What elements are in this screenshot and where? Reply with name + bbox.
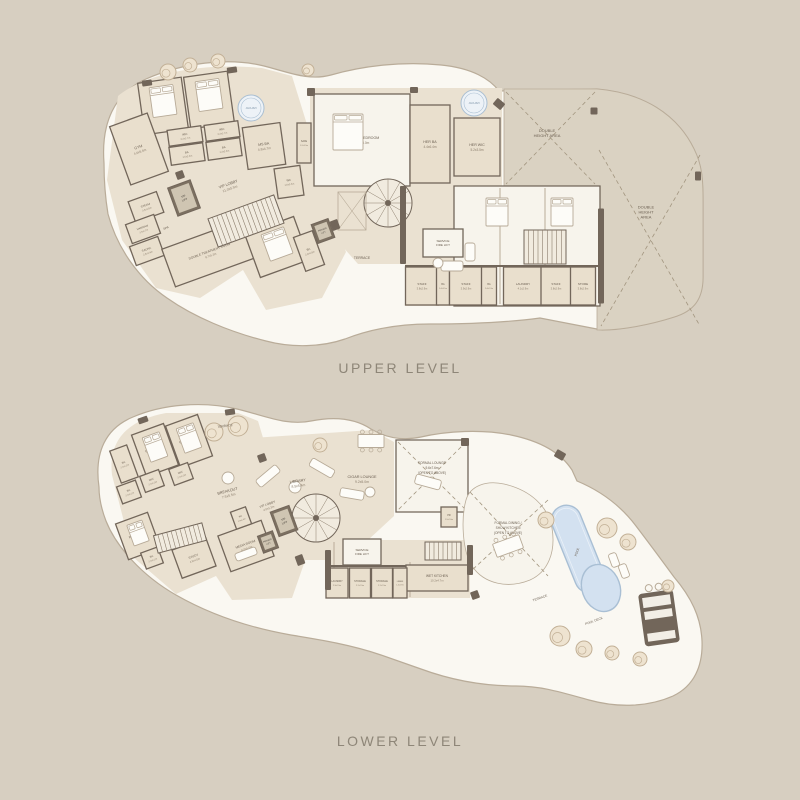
tree bbox=[183, 58, 197, 72]
room-staff: STAFF3.8x2.9m bbox=[406, 267, 439, 305]
sofa-furniture bbox=[441, 261, 463, 271]
area-dims: 9.2x5.0m bbox=[355, 480, 369, 484]
svg-text:AREA: AREA bbox=[641, 214, 652, 219]
service-fire-lift: SERVICEFIRE LIFT bbox=[423, 229, 463, 257]
tree bbox=[662, 580, 674, 592]
room-wc: WC1.6x3.5m bbox=[274, 165, 304, 198]
room-label: HER WIC bbox=[469, 143, 485, 147]
tree bbox=[538, 512, 554, 528]
table-furniture bbox=[433, 258, 443, 268]
area-label: CIGAR LOUNGE bbox=[347, 475, 377, 479]
room-label: WIC bbox=[182, 132, 188, 137]
bed-furniture bbox=[551, 198, 573, 226]
floorplan-canvas: DOUBLEHEIGHT AREADOUBLEHEIGHTAREABEDROOM… bbox=[0, 0, 800, 800]
staircase bbox=[425, 542, 461, 560]
tree bbox=[633, 652, 647, 666]
upper-level-caption: UPPER LEVEL bbox=[0, 360, 800, 376]
tree bbox=[576, 641, 592, 657]
jacuzzi: JACUZZI bbox=[238, 95, 264, 121]
zone-formal-lounge-open: FORMAL LOUNGE9.6x7.6m(OPEN TO ABOVE) bbox=[396, 440, 468, 512]
room-dims: 3.9x2.9m bbox=[461, 286, 472, 290]
room-store: STORE3.8x2.9m bbox=[571, 267, 596, 305]
room-ba: BA2.4x2.2m bbox=[482, 267, 497, 305]
tree bbox=[605, 646, 619, 660]
room-ba: BA1.5x2.0m bbox=[169, 143, 205, 166]
room-ms-ba: MS BA4.8x4.7m bbox=[242, 123, 285, 170]
room-pr: PR1.9x2.6m bbox=[441, 507, 457, 527]
bed-furniture bbox=[149, 84, 177, 117]
wall-segment bbox=[307, 88, 315, 96]
wall-segment bbox=[598, 209, 604, 304]
table-furniture bbox=[222, 472, 234, 484]
wall-segment bbox=[695, 172, 701, 181]
wall-segment bbox=[400, 186, 406, 264]
tree bbox=[211, 54, 225, 68]
room-dims: 2.7x2.9m bbox=[356, 585, 365, 587]
room-label: BA bbox=[222, 145, 226, 149]
room-ba: BA1.4x3.1m bbox=[437, 267, 450, 305]
room-dims: 3.8x2.9m bbox=[551, 286, 562, 290]
svg-text:FORMAL LOUNGE: FORMAL LOUNGE bbox=[418, 461, 446, 465]
room-dims: 2.7x2.9m bbox=[378, 585, 387, 587]
jacuzzi-label: JACUZZI bbox=[468, 101, 479, 105]
room-storage: STORAGE2.7x2.9m bbox=[372, 568, 393, 598]
floorplan-page: DOUBLEHEIGHT AREADOUBLEHEIGHTAREABEDROOM… bbox=[0, 0, 800, 800]
wall-segment bbox=[461, 438, 469, 446]
tree bbox=[597, 518, 617, 538]
room-safe: SAFE1.2x3.9m bbox=[297, 123, 311, 163]
bed-furniture bbox=[333, 114, 363, 150]
svg-text:FIRE LIFT: FIRE LIFT bbox=[436, 243, 450, 247]
room-storage: STORAGE2.7x2.9m bbox=[350, 568, 371, 598]
room-label: LAUNDRY bbox=[516, 282, 530, 286]
tree bbox=[550, 626, 570, 646]
tree bbox=[313, 438, 327, 452]
room-dims: 1.2x3.9m bbox=[300, 145, 309, 147]
svg-text:HEIGHT AREA: HEIGHT AREA bbox=[534, 133, 561, 138]
room-label: LAUNDRY bbox=[331, 580, 343, 583]
room-label: STORAGE bbox=[354, 580, 366, 583]
svg-text:FORMAL DINING /: FORMAL DINING / bbox=[495, 521, 522, 525]
room-dims: 1.9x2.6m bbox=[445, 519, 454, 521]
spiral-staircase bbox=[292, 494, 340, 542]
room-her-ba: HER BA4.4x6.4m bbox=[410, 105, 450, 183]
label-terrace: TERRACE bbox=[354, 256, 371, 260]
tree bbox=[620, 534, 636, 550]
room-dims: 2.3x2.9m bbox=[333, 585, 342, 587]
room-dims: 3.8x2.9m bbox=[417, 286, 428, 290]
room-label: STAFF bbox=[551, 282, 560, 286]
room-laundry: LAUNDRY4.1x2.9m bbox=[504, 267, 543, 305]
room-wet-kitchen: WET KITCHEN10.2x4.7m bbox=[406, 565, 468, 591]
room-label: SAFE bbox=[301, 140, 308, 143]
room-label: BA bbox=[487, 283, 491, 286]
room-staff: STAFF3.9x2.9m bbox=[450, 267, 483, 305]
room-label: PR bbox=[447, 514, 451, 517]
room-label: STORE bbox=[578, 282, 588, 286]
room-linen: LINEN1.4x2.9m bbox=[393, 568, 407, 598]
room-dims: 1.4x2.9m bbox=[396, 585, 404, 587]
jacuzzi-label: JACUZZI bbox=[245, 106, 256, 110]
room-her-wic: HER WIC5.2x3.5m bbox=[454, 118, 500, 176]
room-label: WIC bbox=[219, 127, 225, 132]
level-lower: FORMAL LOUNGE9.6x7.6m(OPEN TO ABOVE)FORM… bbox=[98, 405, 702, 706]
lower-level-caption: LOWER LEVEL bbox=[0, 733, 800, 749]
room-label: BA bbox=[185, 150, 189, 154]
room-staff: STAFF3.8x2.9m bbox=[541, 267, 571, 305]
bed-furniture bbox=[195, 78, 223, 111]
svg-text:(OPEN TO ABOVE): (OPEN TO ABOVE) bbox=[418, 471, 446, 475]
tree bbox=[302, 64, 314, 76]
room-dims: 4.1x2.9m bbox=[518, 286, 529, 290]
area-label: TERRACE bbox=[354, 256, 371, 260]
wall-segment bbox=[325, 550, 331, 590]
sofa-furniture bbox=[465, 243, 475, 261]
level-upper: DOUBLEHEIGHT AREADOUBLEHEIGHTAREABEDROOM… bbox=[104, 54, 703, 346]
table-furniture bbox=[365, 487, 375, 497]
room-dims: 1.4x3.1m bbox=[439, 288, 448, 290]
tree bbox=[160, 64, 176, 80]
room-label: BA bbox=[441, 283, 445, 286]
room-label: WET KITCHEN bbox=[426, 574, 449, 578]
svg-text:FIRE LIFT: FIRE LIFT bbox=[355, 552, 369, 556]
jacuzzi: JACUZZI bbox=[461, 90, 487, 116]
staircase bbox=[524, 230, 566, 264]
room-dims: 4.4x6.4m bbox=[423, 145, 436, 149]
room-dims: 2.4x2.2m bbox=[485, 288, 494, 290]
service-fire-lift: SERVICEFIRE LIFT bbox=[343, 539, 381, 565]
room-label: WC bbox=[286, 178, 291, 183]
wall-segment bbox=[410, 87, 418, 93]
room-label: STAFF bbox=[461, 282, 470, 286]
wall-segment bbox=[467, 545, 473, 575]
room-label: STORAGE bbox=[376, 580, 388, 583]
room-ba: BA1.4x2.0m bbox=[206, 138, 242, 161]
room-dims: 5.2x3.5m bbox=[470, 148, 483, 152]
room-label: STAFF bbox=[417, 282, 426, 286]
room-label: LINEN bbox=[397, 581, 404, 583]
room-dims: 10.2x4.7m bbox=[430, 579, 444, 583]
svg-text:9.6x7.6m: 9.6x7.6m bbox=[425, 466, 438, 470]
svg-text:SHOW KITCHEN: SHOW KITCHEN bbox=[496, 526, 521, 530]
bed-furniture bbox=[486, 198, 508, 226]
wall-segment bbox=[591, 108, 598, 115]
room-dims: 3.8x2.9m bbox=[578, 286, 589, 290]
room-label: HER BA bbox=[423, 140, 437, 144]
